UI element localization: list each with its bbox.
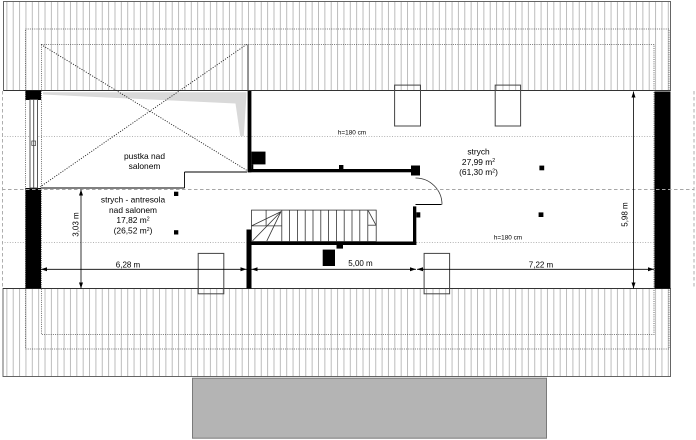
svg-text:strych - antresola: strych - antresola [101,195,166,205]
svg-text:27,99 m2: 27,99 m2 [462,157,495,167]
svg-text:6,28 m: 6,28 m [116,260,141,269]
svg-text:h=180 cm: h=180 cm [338,130,366,137]
svg-text:17,82 m2: 17,82 m2 [116,215,149,225]
svg-text:3,03 m: 3,03 m [72,212,81,237]
svg-text:h=180 cm: h=180 cm [494,235,522,242]
svg-text:7,22 m: 7,22 m [529,261,554,270]
svg-text:nad salonem: nad salonem [109,205,157,215]
svg-text:salonem: salonem [129,161,161,171]
svg-text:5,00 m: 5,00 m [348,259,373,268]
svg-text:5,98 m: 5,98 m [621,202,630,227]
svg-text:strych: strych [467,147,490,157]
svg-text:pustka nad: pustka nad [124,151,165,161]
